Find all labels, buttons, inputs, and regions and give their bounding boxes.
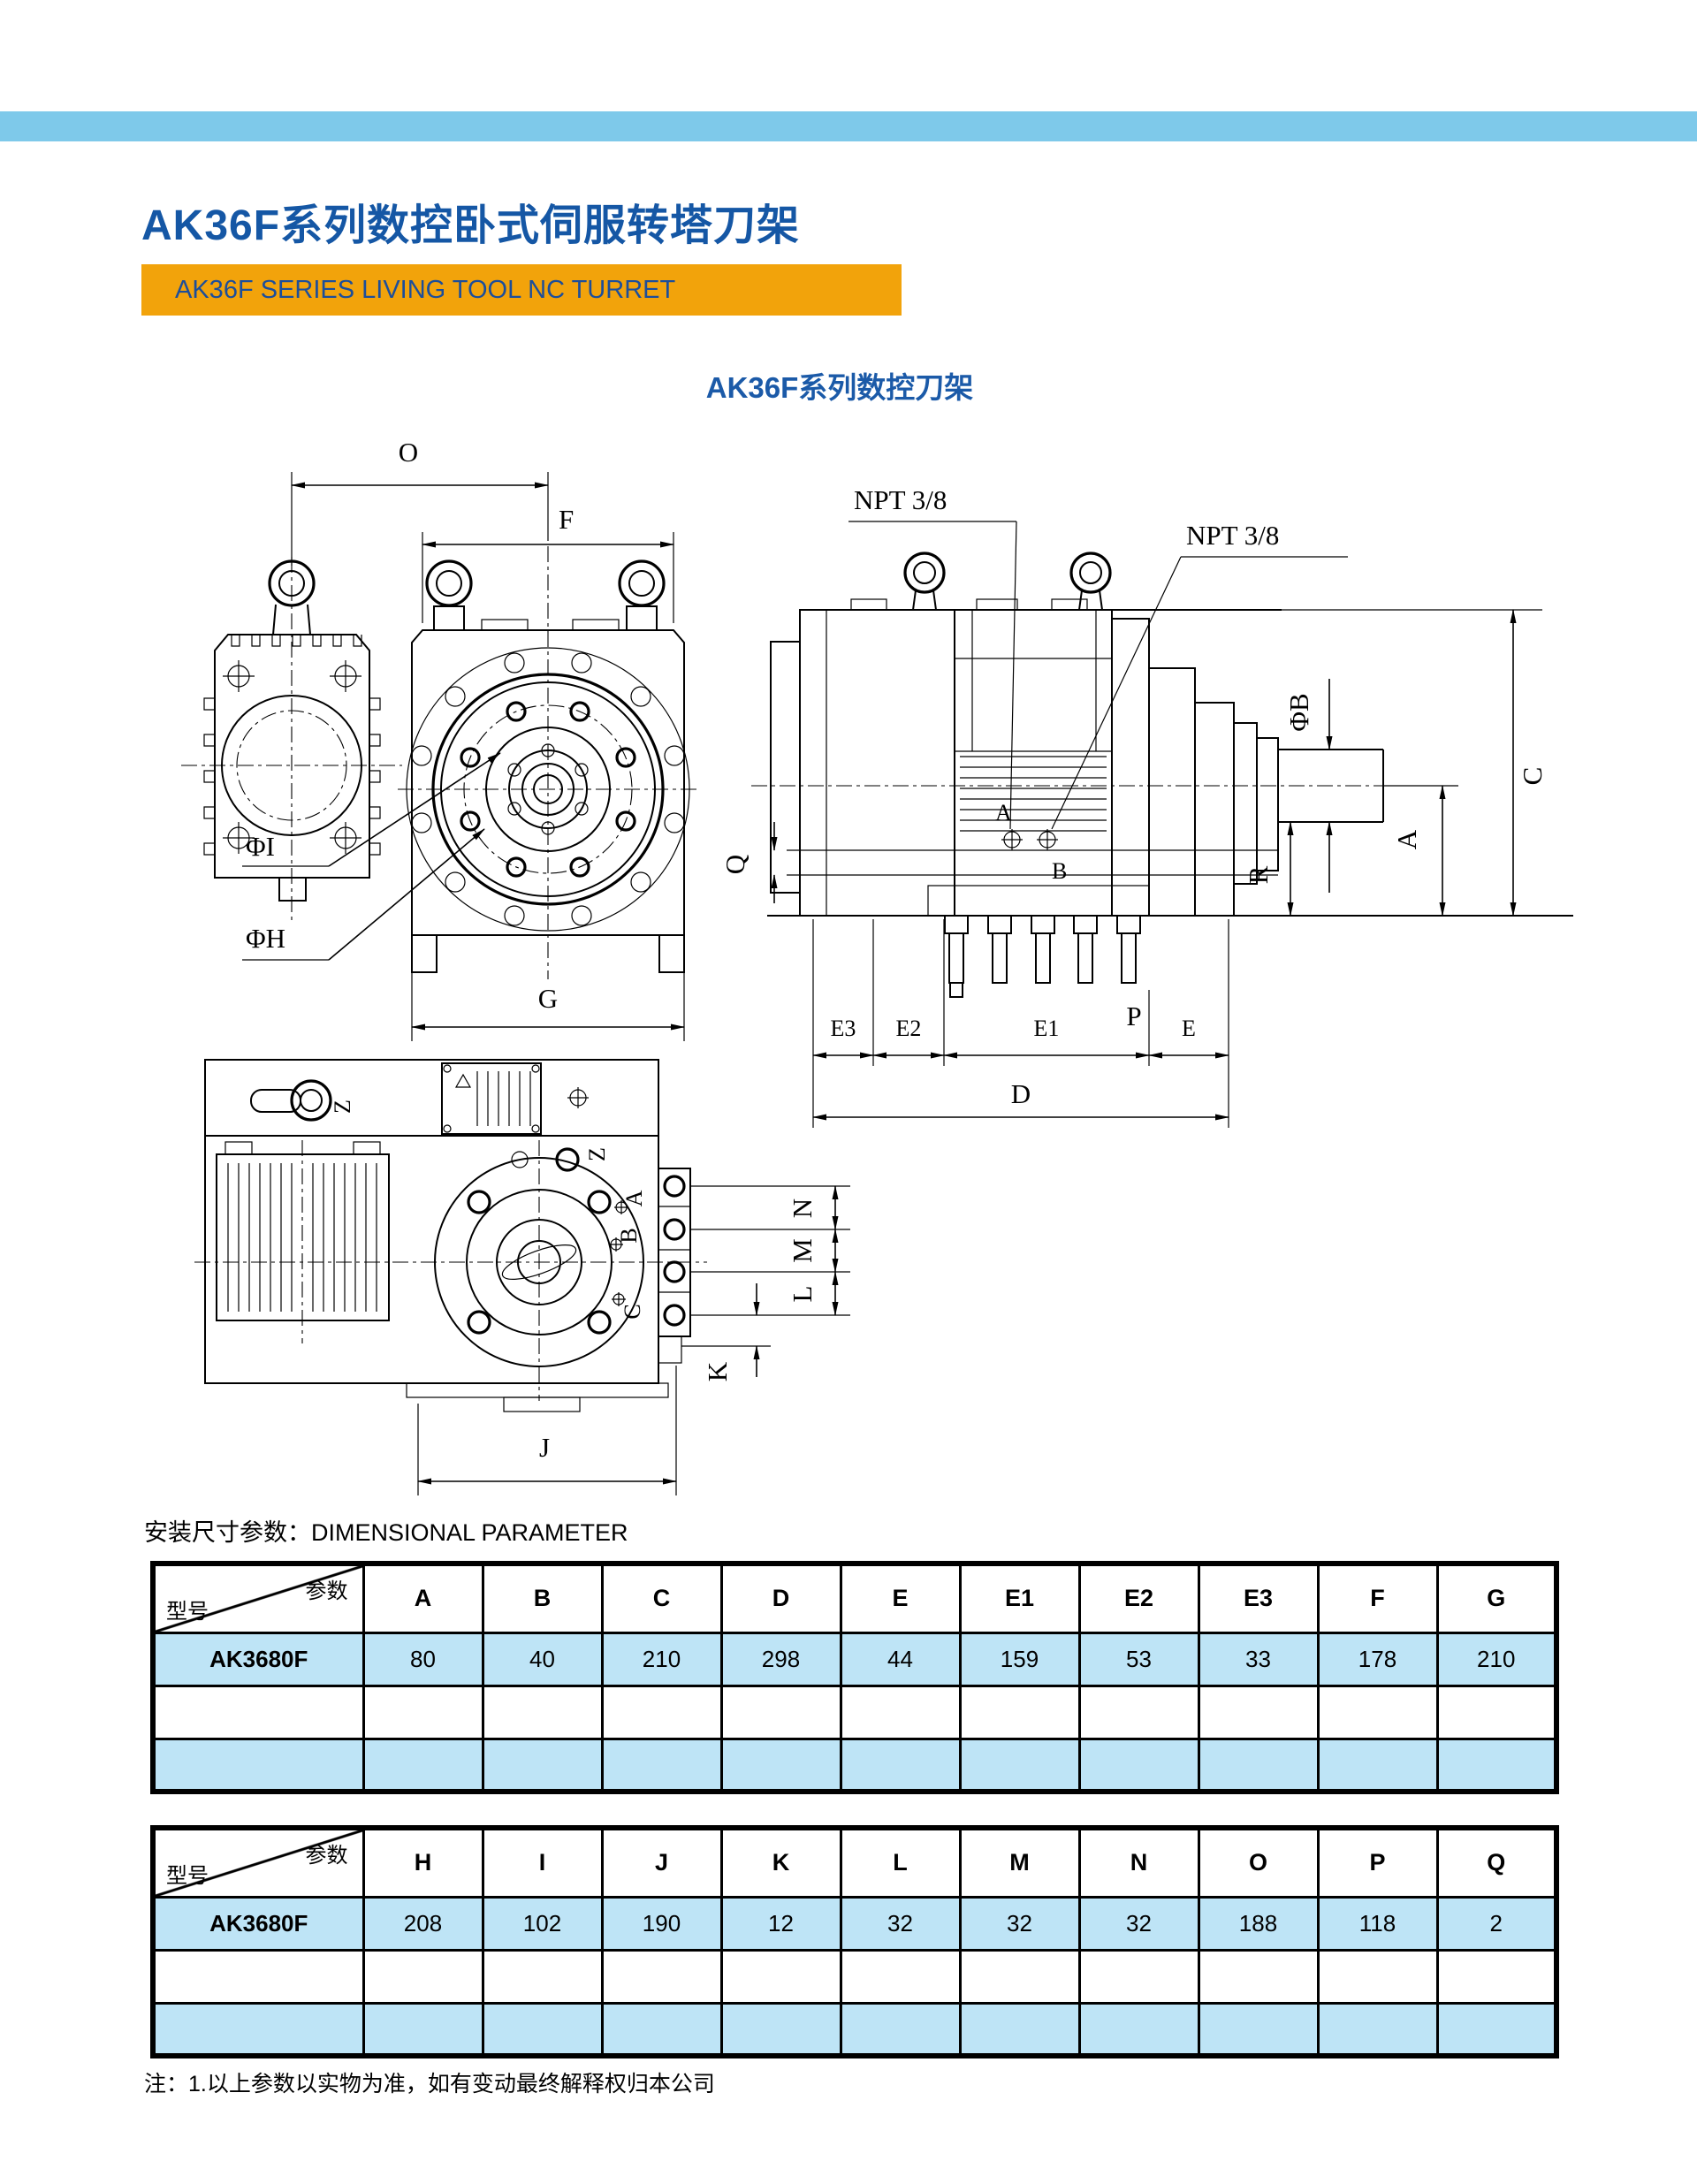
dim-label-q: Q xyxy=(719,855,750,874)
value-cell: 32 xyxy=(1079,1897,1199,1950)
dim-label-phi-i: ΦI xyxy=(246,831,275,862)
col-header: E xyxy=(841,1564,960,1632)
value-cell xyxy=(153,1950,363,2003)
model-cell: AK3680F xyxy=(153,1897,363,1950)
value-cell xyxy=(153,2003,363,2056)
port-label-b: B xyxy=(1052,858,1067,884)
dim-label-phi-h: ΦH xyxy=(246,923,285,954)
dim-label-e1: E1 xyxy=(1034,1016,1060,1041)
footnote: 注：1.以上参数以实物为准，如有变动最终解释权归本公司 xyxy=(144,2066,715,2098)
z-mark-label: Z xyxy=(584,1147,610,1161)
dim-label-g: G xyxy=(538,983,558,1014)
value-cell: 118 xyxy=(1318,1897,1437,1950)
dim-label-j: J xyxy=(539,1432,550,1463)
table-row: AK3680F 208 102 190 12 32 32 32 188 118 … xyxy=(153,1897,1556,1950)
col-header: D xyxy=(721,1564,841,1632)
technical-drawing: O F ΦI ΦH G xyxy=(88,389,1644,1529)
value-cell: 53 xyxy=(1079,1632,1199,1686)
col-header: O xyxy=(1199,1828,1318,1897)
eyebolt-icon xyxy=(620,561,664,630)
col-header: A xyxy=(363,1564,483,1632)
section-label: 安装尺寸参数：DIMENSIONAL PARAMETER xyxy=(144,1513,628,1548)
dim-label-l: L xyxy=(787,1286,818,1303)
value-cell: 159 xyxy=(960,1632,1079,1686)
value-cell: 44 xyxy=(841,1632,960,1686)
empty-row xyxy=(153,1686,1556,1739)
corner-label-param: 参数 xyxy=(306,1838,348,1868)
col-header: E1 xyxy=(960,1564,1079,1632)
value-cell: 210 xyxy=(602,1632,721,1686)
value-cell: 188 xyxy=(1199,1897,1318,1950)
port-label-a: A xyxy=(995,800,1012,826)
dimensional-table-2: 参数 型号 H I J K L M N O P Q AK3680F 208 10… xyxy=(150,1825,1559,2058)
col-header: K xyxy=(721,1828,841,1897)
col-header: F xyxy=(1318,1564,1437,1632)
eyebolt-icon xyxy=(427,561,471,630)
col-header: L xyxy=(841,1828,960,1897)
value-cell: 32 xyxy=(960,1897,1079,1950)
corner-label-model: 型号 xyxy=(166,1858,209,1889)
value-cell: 178 xyxy=(1318,1632,1437,1686)
corner-label-model: 型号 xyxy=(166,1594,209,1625)
bottom-view: Z Z xyxy=(194,1060,850,1495)
dim-label-e2: E2 xyxy=(896,1016,922,1041)
col-header: I xyxy=(483,1828,602,1897)
front-view: O F ΦI ΦH G xyxy=(181,437,700,1041)
col-header: G xyxy=(1437,1564,1556,1632)
eyebolt-icon xyxy=(1071,553,1110,610)
series-banner-text: AK36F SERIES LIVING TOOL NC TURRET xyxy=(141,264,902,316)
dimensional-table-1: 参数 型号 A B C D E E1 E2 E3 F G AK3680F 80 … xyxy=(150,1561,1559,1794)
value-cell: 32 xyxy=(841,1897,960,1950)
dim-label-e3: E3 xyxy=(831,1016,856,1041)
value-cell: 190 xyxy=(602,1897,721,1950)
dim-label-p: P xyxy=(1126,1001,1141,1031)
value-cell: 40 xyxy=(483,1632,602,1686)
series-banner: AK36F SERIES LIVING TOOL NC TURRET xyxy=(141,264,902,316)
empty-row xyxy=(153,2003,1556,2056)
col-header: M xyxy=(960,1828,1079,1897)
col-header: C xyxy=(602,1564,721,1632)
z-mark-label: Z xyxy=(330,1100,355,1114)
station-label-a: A xyxy=(621,1190,647,1206)
value-cell: 2 xyxy=(1437,1897,1556,1950)
clamp-bolts xyxy=(665,1176,684,1325)
eyebolt-icon xyxy=(905,553,944,610)
dim-label-f: F xyxy=(559,504,574,535)
page-title: AK36F系列数控卧式伺服转塔刀架 xyxy=(141,190,800,252)
col-header: H xyxy=(363,1828,483,1897)
dim-label-e: E xyxy=(1182,1016,1196,1041)
dim-label-c: C xyxy=(1517,767,1548,786)
station-label-b: B xyxy=(616,1228,642,1243)
dim-label-a: A xyxy=(1391,829,1422,849)
tool-studs xyxy=(945,916,1140,997)
dim-label-r: R xyxy=(1243,865,1274,884)
corner-cell: 参数 型号 xyxy=(153,1828,363,1897)
top-accent-bar xyxy=(0,111,1697,141)
value-cell: 208 xyxy=(363,1897,483,1950)
station-label-c: C xyxy=(620,1304,645,1319)
npt-label-right: NPT 3/8 xyxy=(1186,520,1279,551)
value-cell: 210 xyxy=(1437,1632,1556,1686)
empty-row xyxy=(153,1950,1556,2003)
side-view: A B NPT 3/8 NPT 3/8 ΦB C A R Q P E3 E2 E… xyxy=(719,484,1573,1128)
col-header: J xyxy=(602,1828,721,1897)
dim-label-k: K xyxy=(702,1361,733,1381)
table-header-row: 参数 型号 A B C D E E1 E2 E3 F G xyxy=(153,1564,1556,1632)
value-cell xyxy=(153,1739,363,1792)
col-header: E2 xyxy=(1079,1564,1199,1632)
empty-row xyxy=(153,1739,1556,1792)
catalog-page: { "page": { "title": "AK36F系列数控卧式伺服转塔刀架"… xyxy=(0,0,1697,2184)
value-cell: 102 xyxy=(483,1897,602,1950)
corner-label-param: 参数 xyxy=(306,1573,348,1604)
col-header: E3 xyxy=(1199,1564,1318,1632)
col-header: P xyxy=(1318,1828,1437,1897)
value-cell: 33 xyxy=(1199,1632,1318,1686)
corner-cell: 参数 型号 xyxy=(153,1564,363,1632)
col-header: N xyxy=(1079,1828,1199,1897)
dim-label-d: D xyxy=(1011,1078,1031,1109)
dim-label-phi-b: ΦB xyxy=(1283,693,1314,731)
col-header: Q xyxy=(1437,1828,1556,1897)
table-header-row: 参数 型号 H I J K L M N O P Q xyxy=(153,1828,1556,1897)
value-cell: 12 xyxy=(721,1897,841,1950)
dim-label-o: O xyxy=(399,437,418,468)
npt-label-left: NPT 3/8 xyxy=(854,484,947,515)
col-header: B xyxy=(483,1564,602,1632)
value-cell xyxy=(153,1686,363,1739)
eyebolt-icon xyxy=(251,1081,331,1120)
model-cell: AK3680F xyxy=(153,1632,363,1686)
value-cell: 298 xyxy=(721,1632,841,1686)
nameplate xyxy=(442,1063,541,1134)
value-cell: 80 xyxy=(363,1632,483,1686)
dim-label-m: M xyxy=(787,1238,818,1263)
dim-label-n: N xyxy=(787,1199,818,1218)
table-row: AK3680F 80 40 210 298 44 159 53 33 178 2… xyxy=(153,1632,1556,1686)
coolant-ports xyxy=(1001,829,1058,850)
